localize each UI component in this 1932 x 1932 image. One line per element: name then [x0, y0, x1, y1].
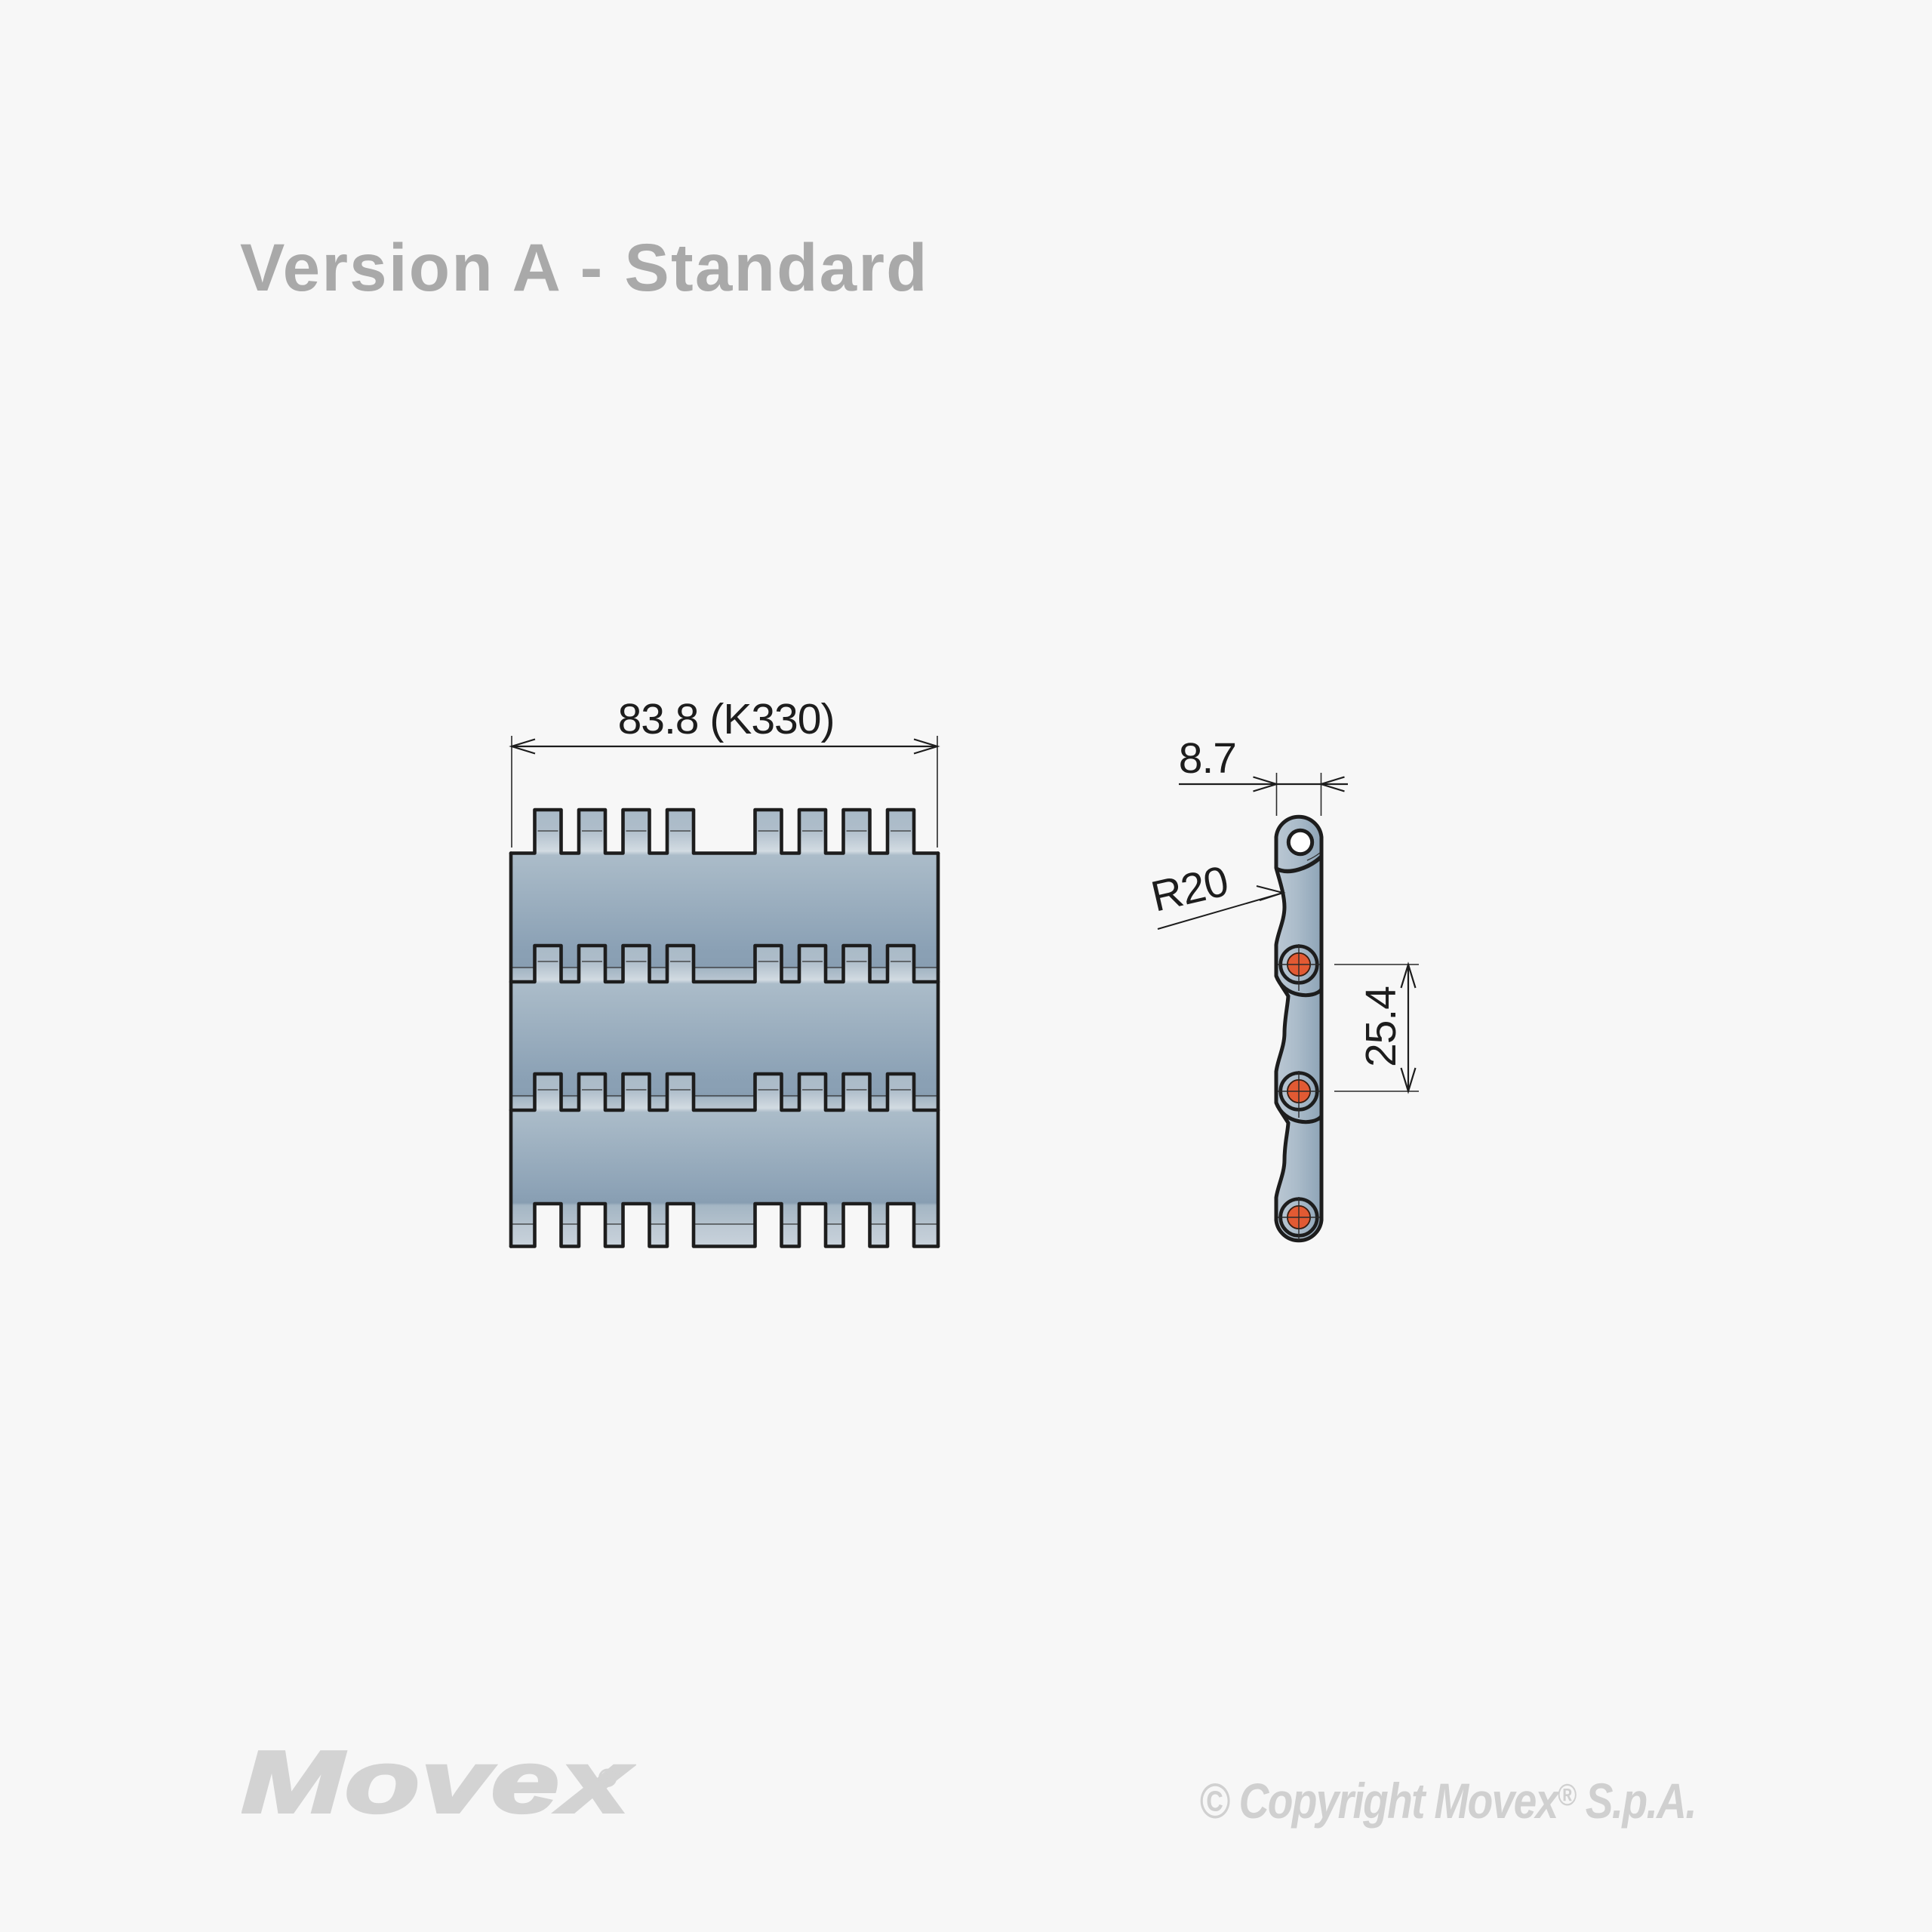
svg-text:8.7: 8.7 — [1179, 734, 1236, 783]
svg-text:83.8 (K330): 83.8 (K330) — [618, 695, 835, 743]
svg-text:25.4: 25.4 — [1357, 986, 1405, 1067]
